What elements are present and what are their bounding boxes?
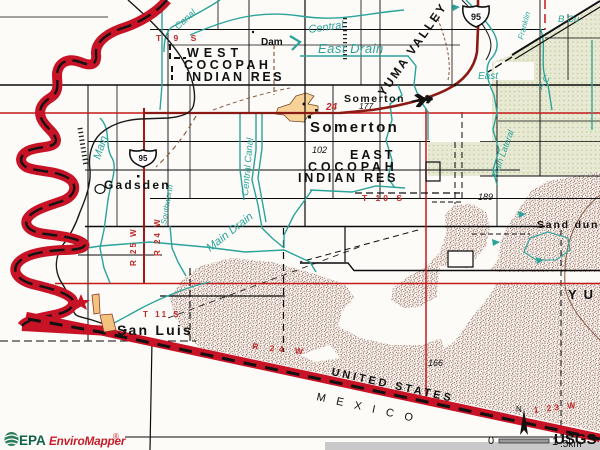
svg-text:166: 166 bbox=[428, 358, 443, 368]
svg-text:.5km: .5km bbox=[560, 439, 582, 450]
svg-text:East Drain: East Drain bbox=[318, 41, 384, 56]
svg-text:B Cu: B Cu bbox=[558, 14, 580, 25]
svg-text:95: 95 bbox=[471, 12, 481, 22]
svg-text:T 9 S: T 9 S bbox=[156, 33, 201, 43]
svg-text:Dam: Dam bbox=[261, 37, 283, 48]
svg-text:Somerton: Somerton bbox=[310, 119, 399, 136]
svg-text:Gadsden: Gadsden bbox=[104, 178, 171, 192]
svg-text:95: 95 bbox=[139, 154, 148, 163]
svg-text:Somerton: Somerton bbox=[344, 93, 405, 105]
svg-text:T 10 S: T 10 S bbox=[362, 193, 405, 203]
svg-text:102: 102 bbox=[312, 145, 327, 155]
svg-text:N: N bbox=[516, 405, 522, 414]
svg-text:East: East bbox=[478, 71, 499, 82]
svg-text:T 11 S: T 11 S bbox=[143, 310, 181, 319]
svg-text:177: 177 bbox=[359, 101, 373, 111]
svg-text:R 25 W: R 25 W bbox=[129, 227, 138, 266]
svg-text:INDIAN RES: INDIAN RES bbox=[186, 70, 284, 84]
svg-text:YU: YU bbox=[568, 287, 600, 302]
svg-text:San Luis: San Luis bbox=[117, 322, 193, 338]
svg-text:0: 0 bbox=[488, 435, 494, 447]
svg-text:®: ® bbox=[113, 432, 119, 441]
svg-text:24: 24 bbox=[325, 102, 338, 113]
svg-text:189: 189 bbox=[478, 192, 493, 202]
svg-text:EPA: EPA bbox=[19, 433, 46, 448]
svg-text:Sand dune: Sand dune bbox=[537, 219, 600, 231]
svg-text:INDIAN RES: INDIAN RES bbox=[298, 171, 398, 185]
